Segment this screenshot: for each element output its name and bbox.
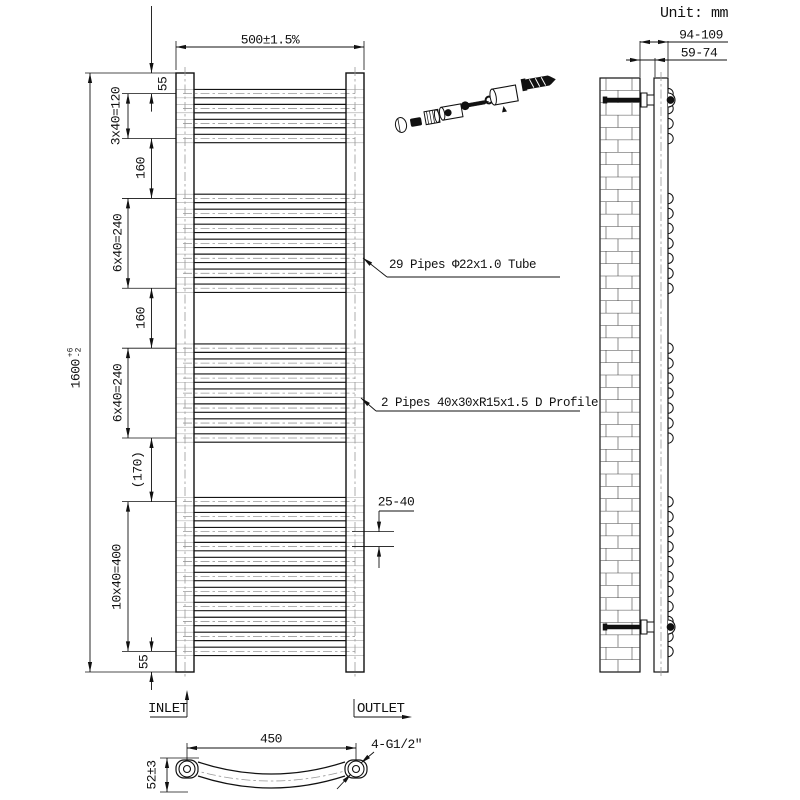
unit-label: Unit: mm [660, 6, 728, 21]
dim-6x40-b: 6x40=240 [112, 364, 125, 422]
outlet-label: OUTLET [357, 702, 404, 716]
dim-bottom-55: 55 [138, 655, 151, 670]
dim-height-value: 1600 [68, 359, 83, 388]
dim-170: (170) [132, 452, 145, 489]
dim-pipe-gap: 25-40 [378, 496, 415, 509]
pipes-annotation: 29 Pipes Φ22x1.0 Tube [389, 259, 536, 272]
dim-width-500: 500±1.5% [241, 34, 299, 47]
dim-160-a: 160 [135, 157, 148, 179]
bottom-view [176, 760, 367, 788]
tol-minus: -2 [76, 348, 84, 358]
dim-wall-inner: 59-74 [681, 47, 718, 60]
dim-depth-52: 52±3 [146, 760, 159, 789]
dim-3x40: 3x40=120 [110, 87, 123, 145]
dim-top-55: 55 [157, 77, 170, 92]
mounting-hardware-exploded [394, 74, 556, 134]
inlet-label: INLET [148, 702, 188, 716]
dim-height-tolerance: +6-2 [68, 348, 85, 358]
dim-wall-outer: 94-109 [679, 29, 723, 42]
dim-curve-450: 450 [260, 733, 282, 746]
dim-height-1600: 1600+6-2 [68, 348, 85, 389]
front-view [176, 67, 364, 678]
dim-160-b: 160 [135, 307, 148, 329]
side-view [600, 72, 675, 678]
technical-drawing-towel-radiator: Unit: mm 500±1.5% 1600+6-2 55 3x40=120 1… [0, 0, 800, 800]
dim-6x40-a: 6x40=240 [112, 214, 125, 272]
thread-annotation: 4-G1/2″ [371, 738, 422, 751]
profile-annotation: 2 Pipes 40x30xR15x1.5 D Profile [381, 397, 598, 410]
dim-10x40: 10x40=400 [111, 544, 124, 610]
